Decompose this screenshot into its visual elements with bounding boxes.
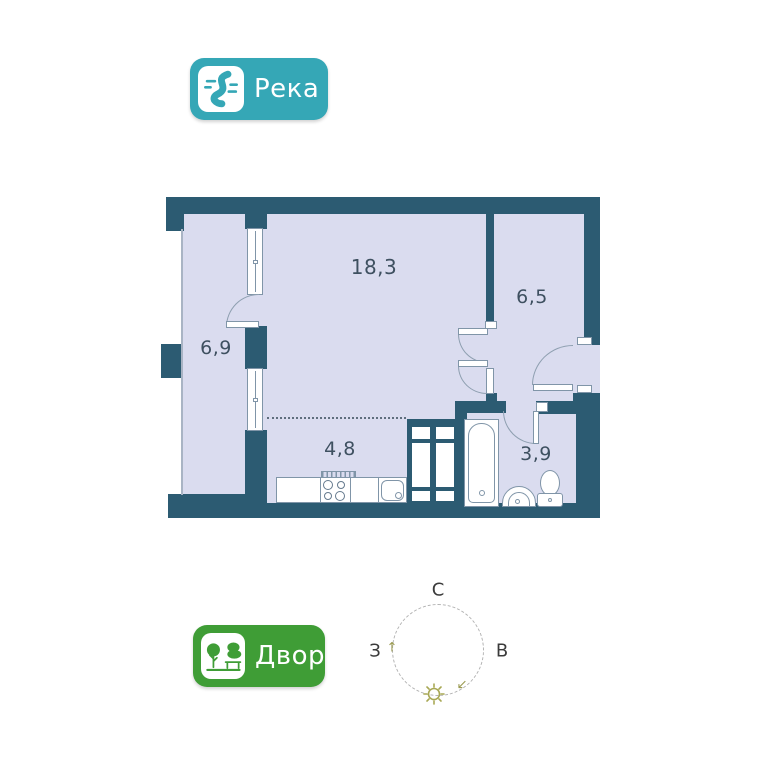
stove-burner [335,491,345,501]
room-area-label-bathroom: 3,9 [520,443,552,465]
room-area-label-kitchen: 4,8 [324,438,356,460]
door-frame [486,368,494,394]
window [247,368,263,431]
compass-north-label: С [432,580,445,601]
wall [245,326,267,369]
wall [245,430,267,518]
toilet-button [548,498,552,502]
direction-arrow-up-icon: ↑ [387,641,398,656]
room-area-label-living: 18,3 [351,255,398,279]
trees-bench-icon [201,633,245,679]
shaft-pane [436,491,454,501]
counter-divider [320,477,321,503]
kitchen-faucet [395,492,402,499]
wall [486,214,494,329]
shaft-pane [436,443,454,487]
yard-badge-label: Двор [255,641,325,671]
wall [573,393,600,413]
wall [584,197,600,345]
zone-separator-dotted-line [267,417,406,419]
direction-arrow-down-left-icon: ↙ [457,678,468,693]
stove-vent-grill [321,471,356,478]
counter-divider [350,477,351,503]
bathroom-faucet [515,499,520,504]
compass-east-label: В [496,641,508,662]
door-leaf [458,328,488,335]
compass-west-label: З [369,641,381,662]
shaft-pane [412,491,430,501]
door-leaf [458,360,488,367]
shaft-pane [412,427,430,439]
bathtub-drain [479,490,485,496]
wall [166,197,184,231]
balcony-glazing [181,229,183,495]
counter-divider [378,477,379,503]
wall [161,344,182,378]
room-area-label-hallway: 6,5 [516,286,548,308]
sun-icon [418,680,454,716]
room-area-label-balcony: 6,9 [200,337,232,359]
window [247,228,263,295]
door-leaf [226,321,259,328]
door-frame [577,337,592,345]
door-leaf [533,411,539,444]
wall [168,197,600,214]
door-frame [577,385,592,393]
stove-burner [323,480,333,490]
shaft-pane [436,427,454,439]
yard-badge: Двор [193,625,325,687]
door-leaf [533,384,573,391]
shaft-pane [412,443,430,487]
wall [576,411,600,518]
stove-burner [324,492,332,500]
wall [245,214,267,229]
stove-burner [337,481,345,489]
floor-plan: 18,3 6,9 6,5 4,8 3,9 [0,0,767,768]
